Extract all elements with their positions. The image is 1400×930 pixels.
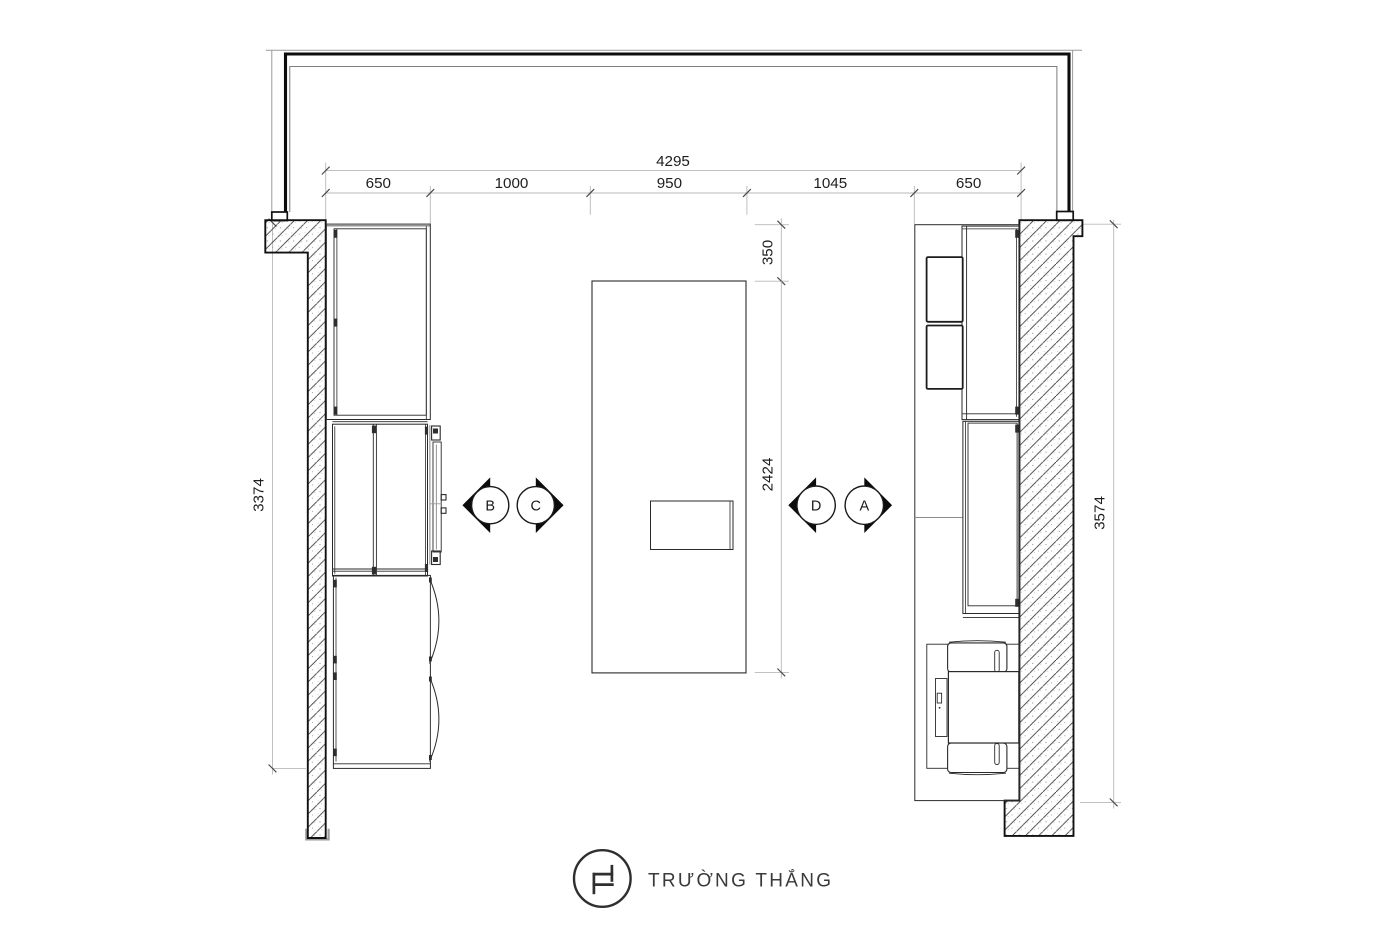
svg-text:C: C	[531, 499, 541, 515]
svg-text:1000: 1000	[495, 175, 529, 192]
svg-text:3374: 3374	[251, 478, 268, 512]
svg-text:350: 350	[760, 240, 777, 265]
svg-text:TRƯỜNG THẮNG: TRƯỜNG THẮNG	[648, 869, 833, 891]
svg-text:4295: 4295	[656, 153, 690, 170]
svg-text:1045: 1045	[813, 175, 847, 192]
svg-text:D: D	[811, 499, 821, 515]
svg-text:3574: 3574	[1092, 496, 1109, 530]
svg-text:650: 650	[366, 175, 391, 192]
svg-text:650: 650	[956, 175, 981, 192]
svg-text:A: A	[859, 499, 869, 515]
svg-text:950: 950	[657, 175, 682, 192]
svg-text:B: B	[485, 499, 495, 515]
svg-text:2424: 2424	[760, 458, 777, 492]
